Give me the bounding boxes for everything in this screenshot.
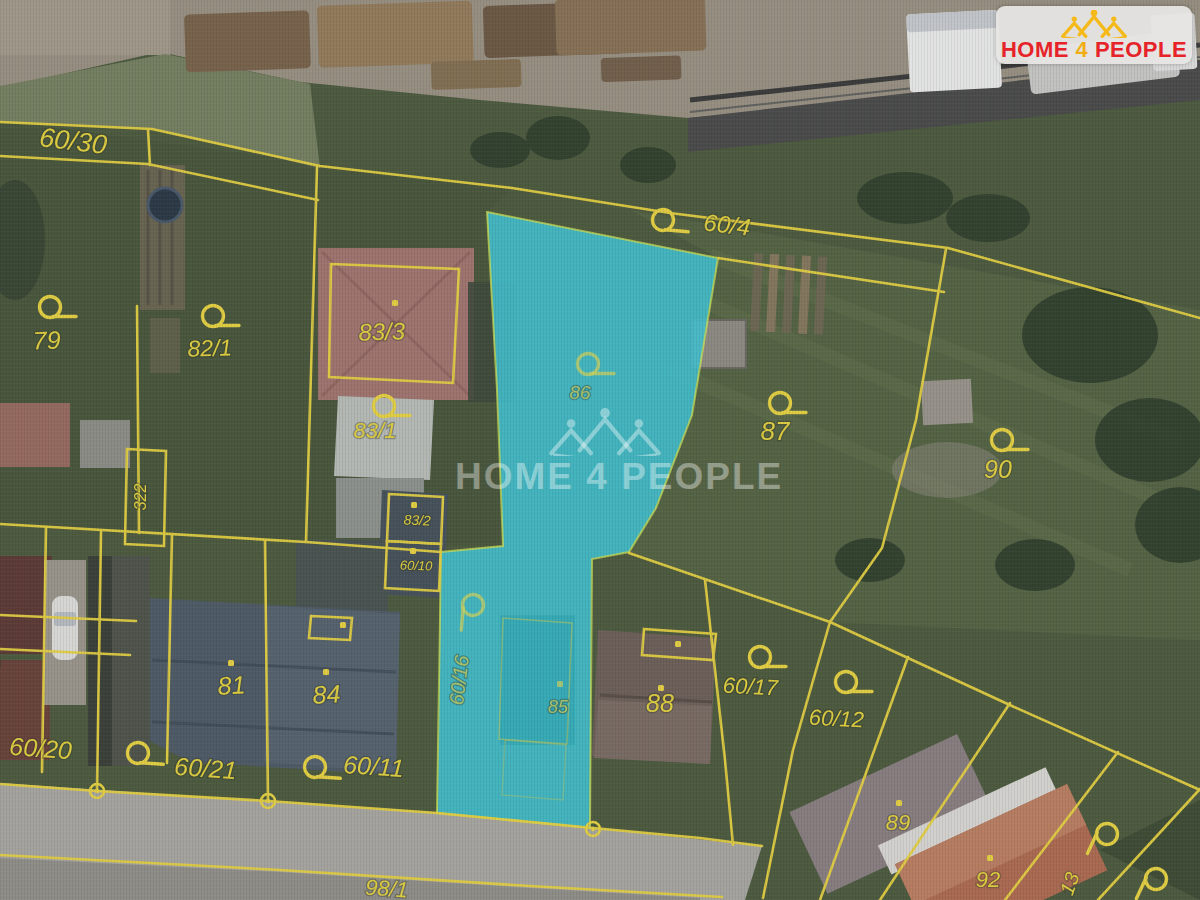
building-dot-icon	[557, 681, 563, 687]
parcel-label-79: 79	[32, 326, 61, 355]
building-dot-icon	[340, 622, 346, 628]
parcel-label-322: 322	[132, 484, 149, 511]
parcel-label-88: 88	[646, 689, 674, 717]
parcel-label-89: 89	[886, 810, 910, 835]
parcel-label-85: 85	[548, 697, 569, 717]
brand-crown-icon	[1044, 10, 1144, 38]
parcel-label-83-1: 83/1	[354, 418, 397, 443]
parcel-label-60-12: 60/12	[808, 705, 864, 733]
parcel-label-60-11: 60/11	[342, 750, 405, 782]
parcel-label-60-20: 60/20	[8, 732, 72, 764]
parcel-label-92: 92	[976, 867, 1000, 892]
building-dot-icon	[228, 660, 234, 666]
parcel-label-82-1: 82/1	[187, 334, 233, 362]
parcel-label-60-10: 60/10	[400, 557, 434, 573]
parcel-label-60-4: 60/4	[702, 208, 752, 240]
parcel-label-83-3: 83/3	[358, 317, 406, 346]
parcel-label-84: 84	[312, 679, 341, 708]
cadastral-map-svg: 60/3060/47982/183/383/186879032283/260/1…	[0, 0, 1200, 900]
parcel-label-90: 90	[984, 455, 1012, 483]
building-dot-icon	[675, 641, 681, 647]
building-dot-icon	[410, 548, 416, 554]
parcel-label-60-17: 60/17	[722, 673, 779, 701]
brand-word-home: HOME	[1001, 37, 1069, 62]
brand-word-people: PEOPLE	[1095, 37, 1187, 62]
parcel-label-60-21: 60/21	[173, 752, 237, 784]
building-dot-icon	[323, 669, 329, 675]
brand-logo-text: HOME 4 PEOPLE	[1001, 39, 1187, 61]
brand-word-4: 4	[1076, 37, 1089, 62]
row-houses	[148, 598, 400, 775]
building-dot-icon	[392, 300, 398, 306]
parcel-label-87: 87	[761, 416, 791, 446]
parcel-label-86: 86	[569, 382, 591, 403]
parcel-label-98-1: 98/1	[364, 875, 408, 900]
aerial-cadastral-map: 60/3060/47982/183/383/186879032283/260/1…	[0, 0, 1200, 900]
building-dot-icon	[411, 502, 417, 508]
brand-logo: HOME 4 PEOPLE	[996, 6, 1192, 64]
building-dot-icon	[987, 855, 993, 861]
parcel-label-81: 81	[217, 670, 246, 699]
building-dot-icon	[896, 800, 902, 806]
parcel-label-83-2: 83/2	[403, 512, 431, 529]
